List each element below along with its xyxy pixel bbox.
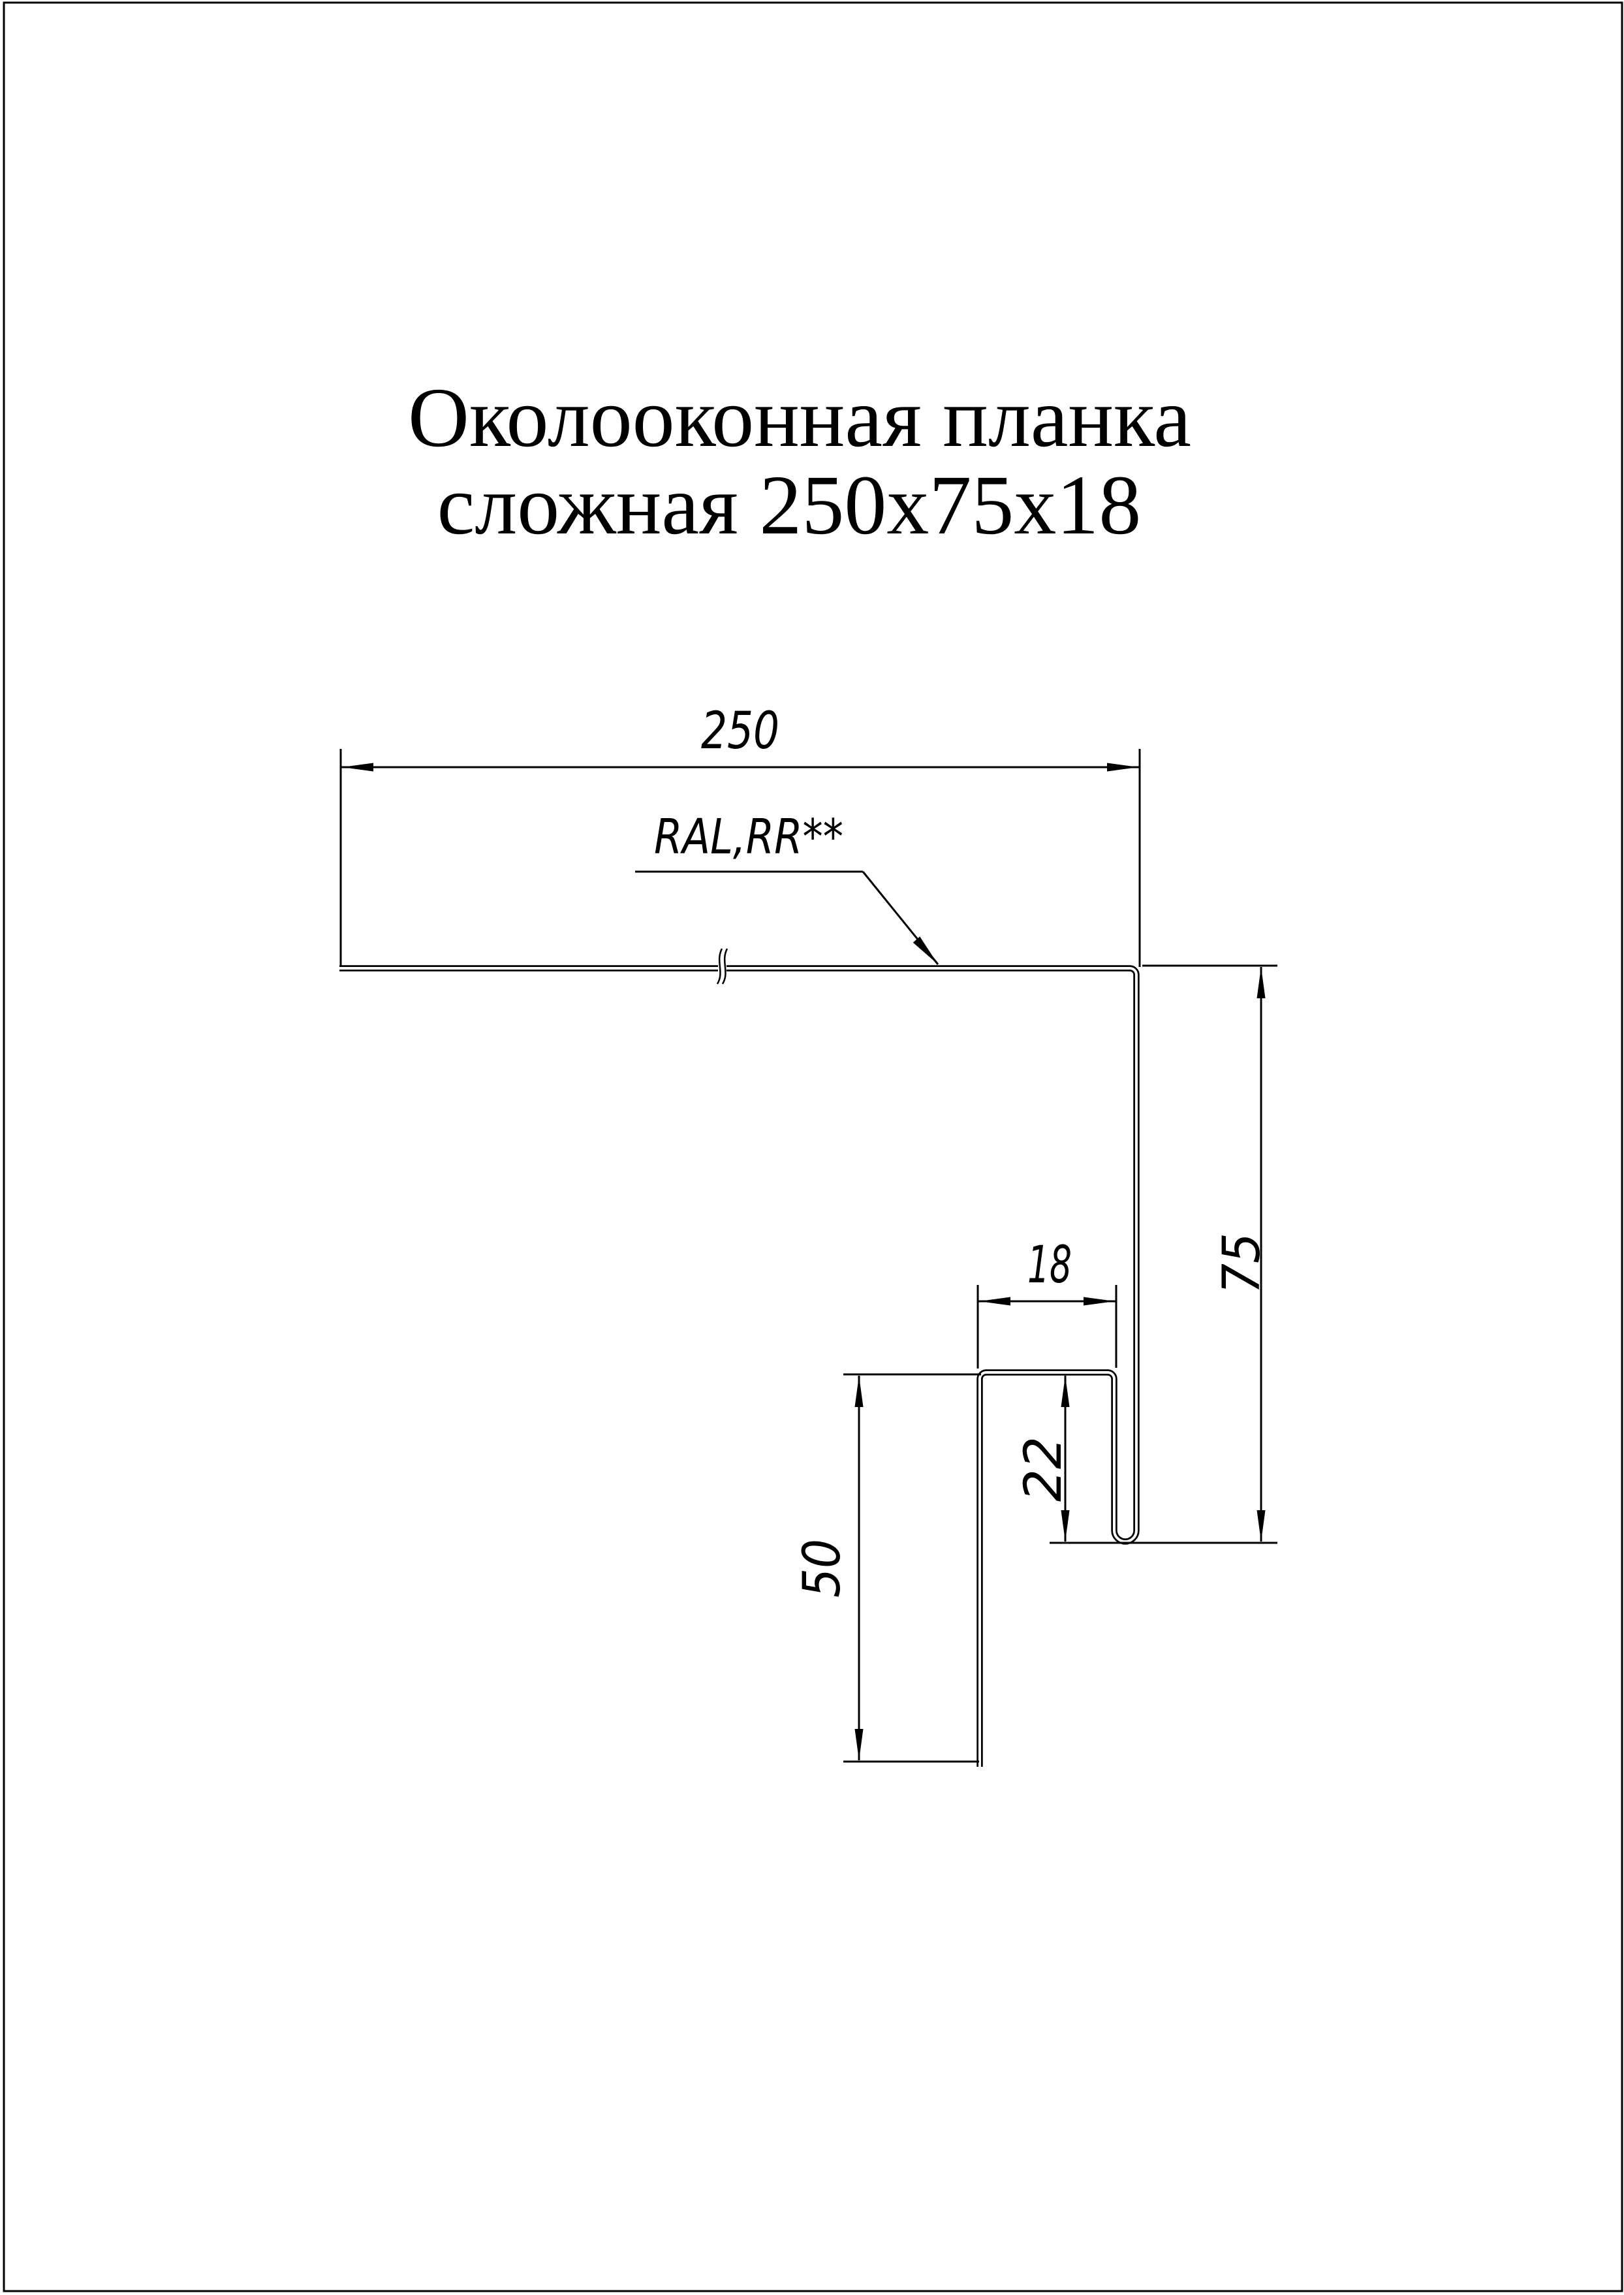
dimension-leg-length: 50 [793,1374,981,1762]
coating-callout: RAL,RR** [635,809,938,964]
dimension-hook-width: 18 [978,1236,1116,1369]
arrow-50-top [855,1376,864,1407]
break-mark [717,949,727,984]
arrow-250-left [342,763,373,772]
arrow-22-bottom [1061,1510,1070,1542]
drawing-title: Околооконная планка сложная 250х75х18 [408,371,1191,552]
dimension-side-height: 75 [1050,966,1277,1543]
arrow-75-top [1257,967,1266,998]
drawing-page: Околооконная планка сложная 250х75х18 25… [0,0,1624,2295]
coating-label: RAL,RR** [654,809,843,865]
profile-sheet-core [339,968,1136,1767]
arrow-75-bottom [1257,1510,1266,1542]
dim-value-250: 250 [701,702,779,761]
dim-value-22: 22 [1014,1436,1073,1502]
dim-value-75: 75 [1213,1233,1272,1294]
arrow-18-right [1084,1297,1115,1306]
title-line-1: Околооконная планка [408,371,1191,465]
profile-sheet-outer [339,968,1136,1767]
leader-arrow [913,936,938,964]
page-border [4,3,1622,2291]
arrow-18-left [979,1297,1010,1306]
arrow-50-bottom [855,1729,864,1760]
profile-outline [339,968,1136,1767]
technical-drawing: Околооконная планка сложная 250х75х18 25… [0,0,1624,2295]
dimension-hook-height: 22 [1014,1376,1073,1542]
arrow-250-right [1107,763,1138,772]
arrow-22-top [1061,1376,1070,1407]
dim-value-18: 18 [1027,1236,1072,1295]
dim-value-50: 50 [793,1539,852,1598]
title-line-2: сложная 250х75х18 [437,458,1142,552]
